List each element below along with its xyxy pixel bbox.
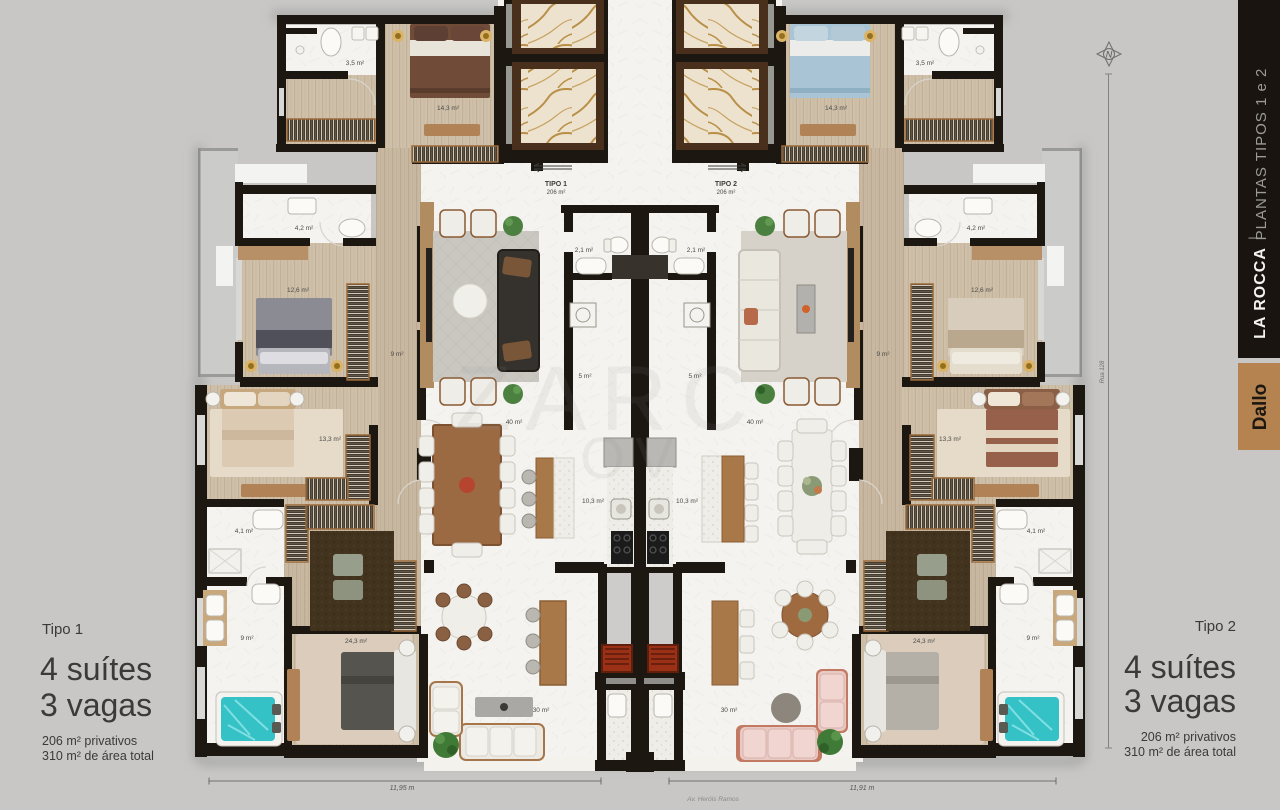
svg-text:5 m²: 5 m² xyxy=(689,373,703,380)
svg-text:Tipo 1: Tipo 1 xyxy=(42,621,83,638)
svg-text:11,91 m: 11,91 m xyxy=(850,785,875,792)
svg-text:10,3 m²: 10,3 m² xyxy=(582,498,605,505)
svg-text:9 m²: 9 m² xyxy=(877,351,891,358)
svg-text:Rua 128: Rua 128 xyxy=(1100,360,1106,383)
svg-text:13,3 m²: 13,3 m² xyxy=(319,436,342,443)
svg-text:3,5 m²: 3,5 m² xyxy=(916,60,935,67)
svg-text:2,1 m²: 2,1 m² xyxy=(687,247,706,254)
svg-text:9 m²: 9 m² xyxy=(1027,635,1041,642)
svg-text:14,3 m²: 14,3 m² xyxy=(825,105,848,112)
svg-text:5 m²: 5 m² xyxy=(579,373,593,380)
svg-text:206 m²: 206 m² xyxy=(717,190,736,196)
svg-text:4,2 m²: 4,2 m² xyxy=(295,225,314,232)
svg-text:N: N xyxy=(1106,50,1113,60)
svg-text:30 m²: 30 m² xyxy=(533,707,550,714)
svg-text:206 m² privativos: 206 m² privativos xyxy=(42,734,137,748)
svg-text:4,2 m²: 4,2 m² xyxy=(967,225,986,232)
svg-text:30 m²: 30 m² xyxy=(721,707,738,714)
svg-text:12,6 m²: 12,6 m² xyxy=(287,287,310,294)
svg-text:10,3 m²: 10,3 m² xyxy=(676,498,699,505)
svg-text:PLANTAS TIPOS 1 e 2: PLANTAS TIPOS 1 e 2 xyxy=(1253,68,1270,241)
svg-text:4,1 m²: 4,1 m² xyxy=(1027,528,1046,535)
svg-text:4 suítes: 4 suítes xyxy=(40,651,152,687)
svg-text:3 vagas: 3 vagas xyxy=(1124,683,1236,719)
svg-text:310 m² de área total: 310 m² de área total xyxy=(42,749,154,763)
svg-text:9 m²: 9 m² xyxy=(241,635,255,642)
svg-text:4,1 m²: 4,1 m² xyxy=(235,528,254,535)
svg-text:3 vagas: 3 vagas xyxy=(40,687,152,723)
svg-text:|: | xyxy=(1246,236,1261,239)
svg-text:TIPO 2: TIPO 2 xyxy=(715,181,737,188)
svg-text:40 m²: 40 m² xyxy=(506,419,523,426)
svg-text:OV: OV xyxy=(580,426,684,491)
svg-text:2,1 m²: 2,1 m² xyxy=(575,247,594,254)
svg-text:40 m²: 40 m² xyxy=(747,419,764,426)
svg-text:9 m²: 9 m² xyxy=(391,351,405,358)
svg-text:206 m²: 206 m² xyxy=(547,190,566,196)
svg-text:12,6 m²: 12,6 m² xyxy=(971,287,994,294)
svg-text:24,3 m²: 24,3 m² xyxy=(913,638,936,645)
svg-text:TIPO 1: TIPO 1 xyxy=(545,181,567,188)
svg-text:24,3 m²: 24,3 m² xyxy=(345,638,368,645)
svg-text:Tipo 2: Tipo 2 xyxy=(1195,618,1236,635)
svg-text:3,5 m²: 3,5 m² xyxy=(346,60,365,67)
svg-text:310 m² de área total: 310 m² de área total xyxy=(1124,745,1236,759)
svg-text:14,3 m²: 14,3 m² xyxy=(437,105,460,112)
svg-text:13,3 m²: 13,3 m² xyxy=(939,436,962,443)
svg-text:4 suítes: 4 suítes xyxy=(1124,649,1236,685)
svg-text:Dallo: Dallo xyxy=(1250,384,1271,430)
svg-text:11,95 m: 11,95 m xyxy=(390,785,415,792)
svg-text:206 m² privativos: 206 m² privativos xyxy=(1141,730,1236,744)
svg-text:Av. Heróis Ramos: Av. Heróis Ramos xyxy=(686,796,740,803)
svg-text:LA ROCCA: LA ROCCA xyxy=(1252,247,1269,339)
